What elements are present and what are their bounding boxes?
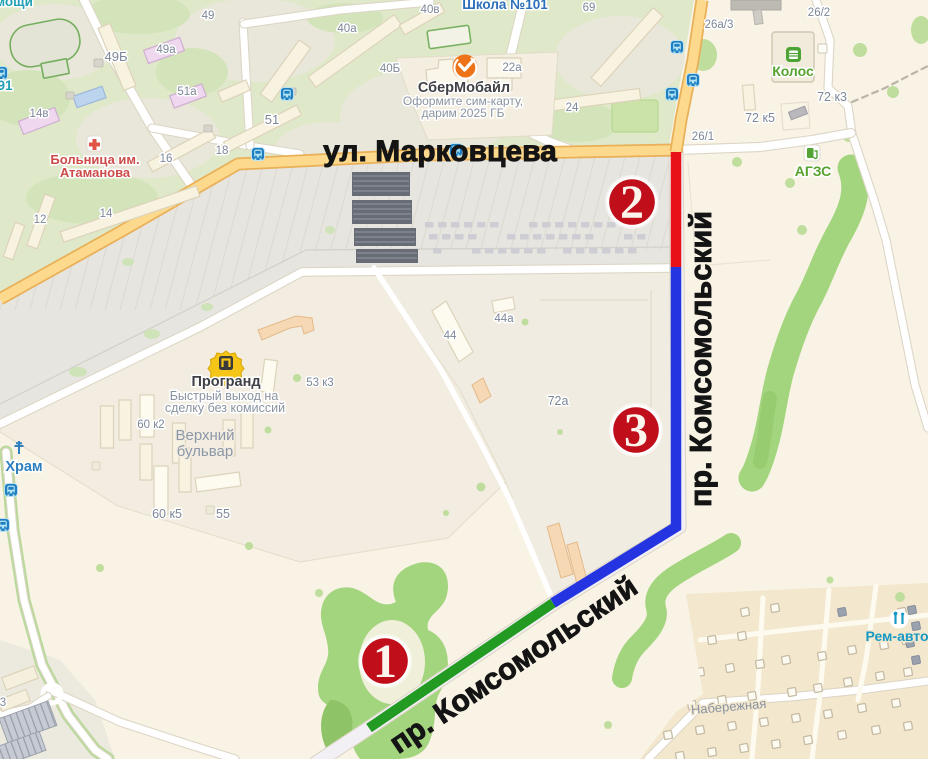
svg-text:26/1: 26/1 <box>692 131 714 143</box>
svg-text:Програнд: Програнд <box>191 374 260 390</box>
svg-text:72а: 72а <box>548 394 569 408</box>
svg-text:14в: 14в <box>30 108 49 120</box>
svg-text:18: 18 <box>216 145 229 157</box>
svg-text:АГЗС: АГЗС <box>795 163 832 179</box>
svg-text:3: 3 <box>0 697 6 709</box>
svg-text:16: 16 <box>160 153 173 165</box>
svg-text:дарим 2025 ГБ: дарим 2025 ГБ <box>421 106 504 120</box>
svg-text:пр. Комсомольский: пр. Комсомольский <box>684 211 718 507</box>
svg-text:26/2: 26/2 <box>808 7 830 19</box>
svg-text:44а: 44а <box>494 313 514 325</box>
svg-text:91: 91 <box>0 78 13 93</box>
svg-text:Колос: Колос <box>772 63 814 79</box>
svg-text:40в: 40в <box>421 4 440 16</box>
svg-text:Храм: Храм <box>5 459 42 475</box>
svg-text:Атаманова: Атаманова <box>60 165 131 180</box>
svg-text:14: 14 <box>100 208 113 220</box>
svg-text:49а: 49а <box>156 44 176 56</box>
svg-text:Верхний: Верхний <box>175 427 234 444</box>
svg-text:69: 69 <box>583 2 596 14</box>
svg-text:26а/3: 26а/3 <box>705 19 734 31</box>
svg-text:49: 49 <box>202 10 215 22</box>
svg-text:60 к2: 60 к2 <box>137 419 164 431</box>
svg-text:72 к3: 72 к3 <box>817 90 847 104</box>
svg-text:60 к5: 60 к5 <box>152 507 182 521</box>
svg-text:55: 55 <box>216 507 230 521</box>
svg-text:22а: 22а <box>502 62 522 74</box>
svg-text:бульвар: бульвар <box>177 443 233 460</box>
svg-text:40а: 40а <box>337 23 357 35</box>
svg-text:53 к3: 53 к3 <box>306 377 333 389</box>
svg-text:Школа №101: Школа №101 <box>462 0 548 12</box>
svg-text:2: 2 <box>620 176 644 229</box>
svg-text:40Б: 40Б <box>380 63 400 75</box>
svg-text:мощи: мощи <box>0 0 33 9</box>
svg-text:12: 12 <box>34 214 47 226</box>
svg-text:49Б: 49Б <box>105 49 128 64</box>
svg-text:72 к5: 72 к5 <box>745 111 775 125</box>
svg-text:сделку без комиссий: сделку без комиссий <box>165 401 285 415</box>
svg-text:24: 24 <box>566 102 579 114</box>
svg-text:Рем-авто: Рем-авто <box>865 628 928 644</box>
svg-text:ул. Марковцева: ул. Марковцева <box>323 135 557 168</box>
svg-text:44: 44 <box>444 330 457 342</box>
svg-text:3: 3 <box>624 404 648 457</box>
svg-text:51: 51 <box>265 112 279 127</box>
svg-text:1: 1 <box>373 635 397 688</box>
svg-text:51а: 51а <box>177 86 197 98</box>
